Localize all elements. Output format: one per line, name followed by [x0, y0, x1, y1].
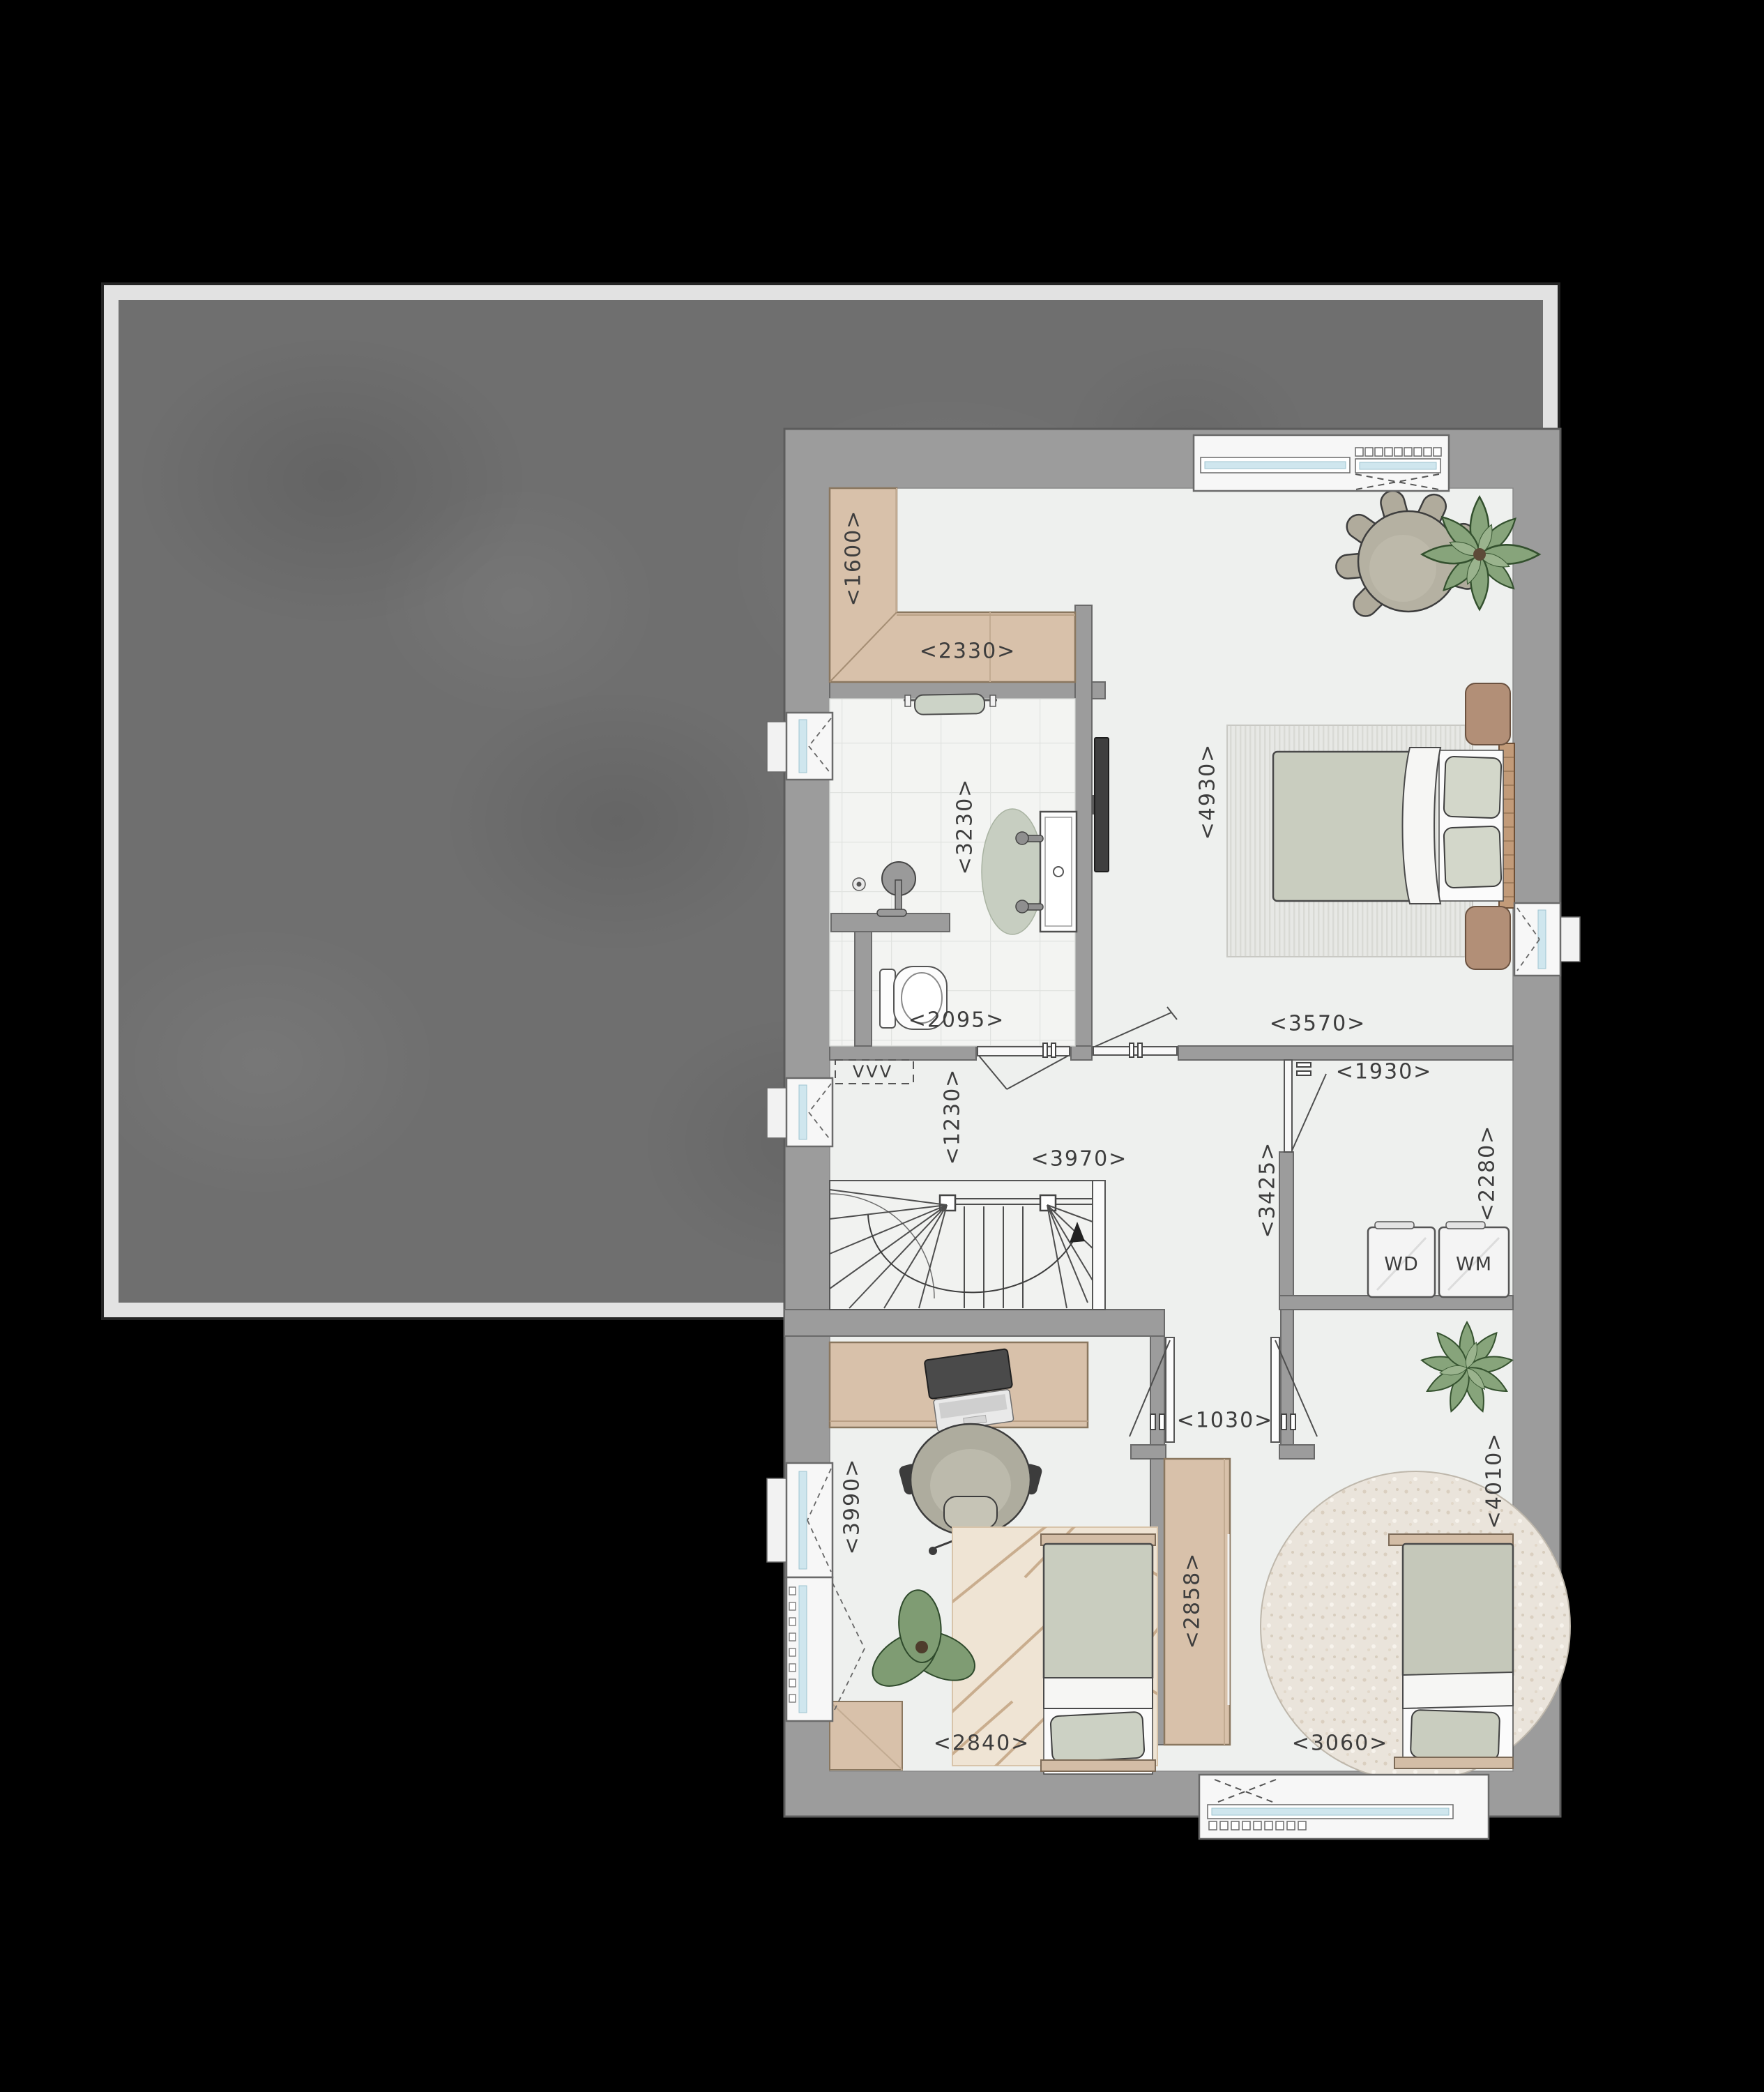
- window-bedroom2-west-upper: [767, 1463, 832, 1577]
- bath-mat: [982, 809, 1043, 934]
- duvet: [1273, 752, 1413, 901]
- dimension-label-closet-length: <1600>: [842, 510, 866, 607]
- pillow: [1444, 826, 1502, 888]
- dimension-label-door-opening-width: <1030>: [1177, 1409, 1274, 1433]
- nightstand: [1466, 907, 1510, 969]
- dimension-label-bedroom2-width: <2840>: [934, 1731, 1031, 1756]
- window-north: [1194, 435, 1449, 491]
- single-bed: [1389, 1534, 1513, 1768]
- stair-railing: [1093, 1181, 1105, 1310]
- window-master-east: [1514, 903, 1580, 976]
- dimension-label-bedroom3-width: <3060>: [1292, 1731, 1389, 1756]
- staircase: [830, 1181, 1105, 1310]
- nightstand: [1466, 683, 1510, 745]
- dimension-label-master-bedroom-length: <4930>: [1196, 743, 1220, 840]
- dimension-label-hall-width: <3970>: [1031, 1147, 1128, 1172]
- washer-dryer-label: WD: [1384, 1254, 1419, 1275]
- plan-drawing: [0, 0, 1764, 2092]
- dimension-label-wardrobe-length: <2858>: [1180, 1552, 1205, 1649]
- dimension-label-bedroom3-length: <4010>: [1482, 1432, 1507, 1529]
- dimension-label-laundry-width: <1930>: [1336, 1060, 1433, 1084]
- dimension-label-master-bedroom-width: <3570>: [1270, 1012, 1367, 1036]
- window-hall-west: [767, 1078, 832, 1146]
- dimension-label-bathroom-length: <3230>: [953, 778, 978, 875]
- folded-sheet: [1403, 748, 1441, 904]
- window-bathroom-west: [767, 713, 832, 780]
- tv-screen: [1095, 738, 1109, 872]
- ventilation-label: VVV: [853, 1062, 893, 1082]
- floor-plan-canvas: <1600> <2330> <3230> <2095> <4930> <3570…: [0, 0, 1764, 2092]
- pillow: [1444, 757, 1502, 819]
- dimension-label-closet-width: <2330>: [920, 639, 1017, 664]
- single-bed: [1041, 1534, 1155, 1774]
- dimension-label-laundry-length: <2280>: [1475, 1125, 1500, 1222]
- dimension-label-bedroom2-length: <3990>: [840, 1458, 865, 1555]
- window-south: [1199, 1775, 1489, 1839]
- washing-machine-label: WM: [1456, 1254, 1492, 1275]
- dimension-label-hall-length: <3425>: [1256, 1142, 1280, 1238]
- double-bed: [1273, 743, 1514, 908]
- dimension-label-bathroom-width: <2095>: [908, 1008, 1005, 1033]
- dimension-label-landing-width: <1230>: [941, 1068, 965, 1165]
- laptop: [925, 1349, 1017, 1432]
